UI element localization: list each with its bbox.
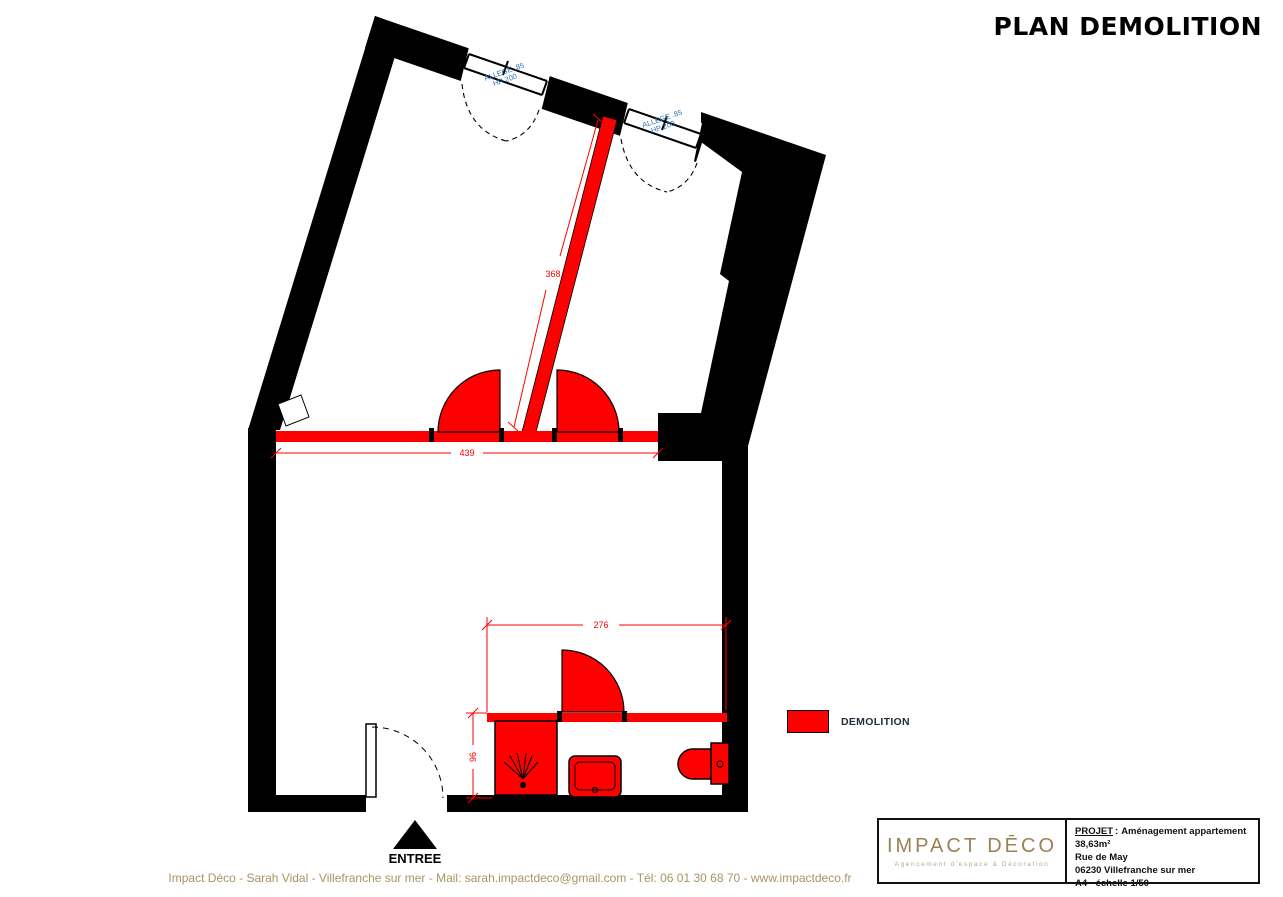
demolition-toilet-bowl (678, 749, 711, 779)
project-separator: : (1115, 826, 1118, 837)
wall-right-upper (658, 112, 826, 461)
floor-plan: ALLEGE .85 HP 200 ALLEGE .85 HP 200 (0, 0, 1283, 897)
dim-439: 439 (459, 448, 474, 458)
entrance-label: ENTREE (389, 851, 442, 866)
demolition-door-swing-left (438, 370, 500, 432)
logo-tagline: Agencement d'espace & Décoration (895, 861, 1050, 868)
project-city: 06230 Villefranche sur mer (1075, 864, 1254, 877)
entrance-door-leaf (366, 724, 376, 797)
demolition-door-swing-right (557, 370, 619, 432)
shower-drain-icon (520, 782, 526, 788)
company-logo: IMPACT DĒCO Agencement d'espace & Décora… (879, 820, 1065, 882)
wall-bottom-left (248, 795, 366, 812)
legend: DEMOLITION (787, 710, 910, 733)
dim-276: 276 (593, 620, 608, 630)
project-line: PROJET:Aménagement appartement 38,63m² (1075, 825, 1254, 851)
entrance-arrow-icon (393, 820, 437, 849)
logo-text: IMPACT DĒCO (887, 835, 1057, 858)
footer-contact: Impact Déco - Sarah Vidal - Villefranche… (150, 871, 870, 885)
legend-label: DEMOLITION (841, 716, 910, 728)
wall-left-lower (248, 428, 276, 812)
title-block: IMPACT DĒCO Agencement d'espace & Décora… (877, 818, 1260, 884)
demolition-shower (495, 721, 557, 795)
project-label: PROJET (1075, 826, 1113, 837)
dim-96: 96 (468, 752, 478, 762)
demolition-wall-horizontal (276, 431, 658, 442)
demolition-color-swatch (787, 710, 829, 733)
wall-left-slanted (248, 16, 404, 430)
entrance-door-swing (372, 727, 443, 798)
project-address: Rue de May (1075, 851, 1254, 864)
sheet-format-scale: A4 - échelle 1/50 (1075, 877, 1254, 890)
demolition-toilet-tank (711, 743, 729, 784)
project-info: PROJET:Aménagement appartement 38,63m² R… (1065, 820, 1258, 882)
demolition-bathroom-door-swing (562, 650, 624, 712)
dim-368: 368 (545, 269, 560, 279)
